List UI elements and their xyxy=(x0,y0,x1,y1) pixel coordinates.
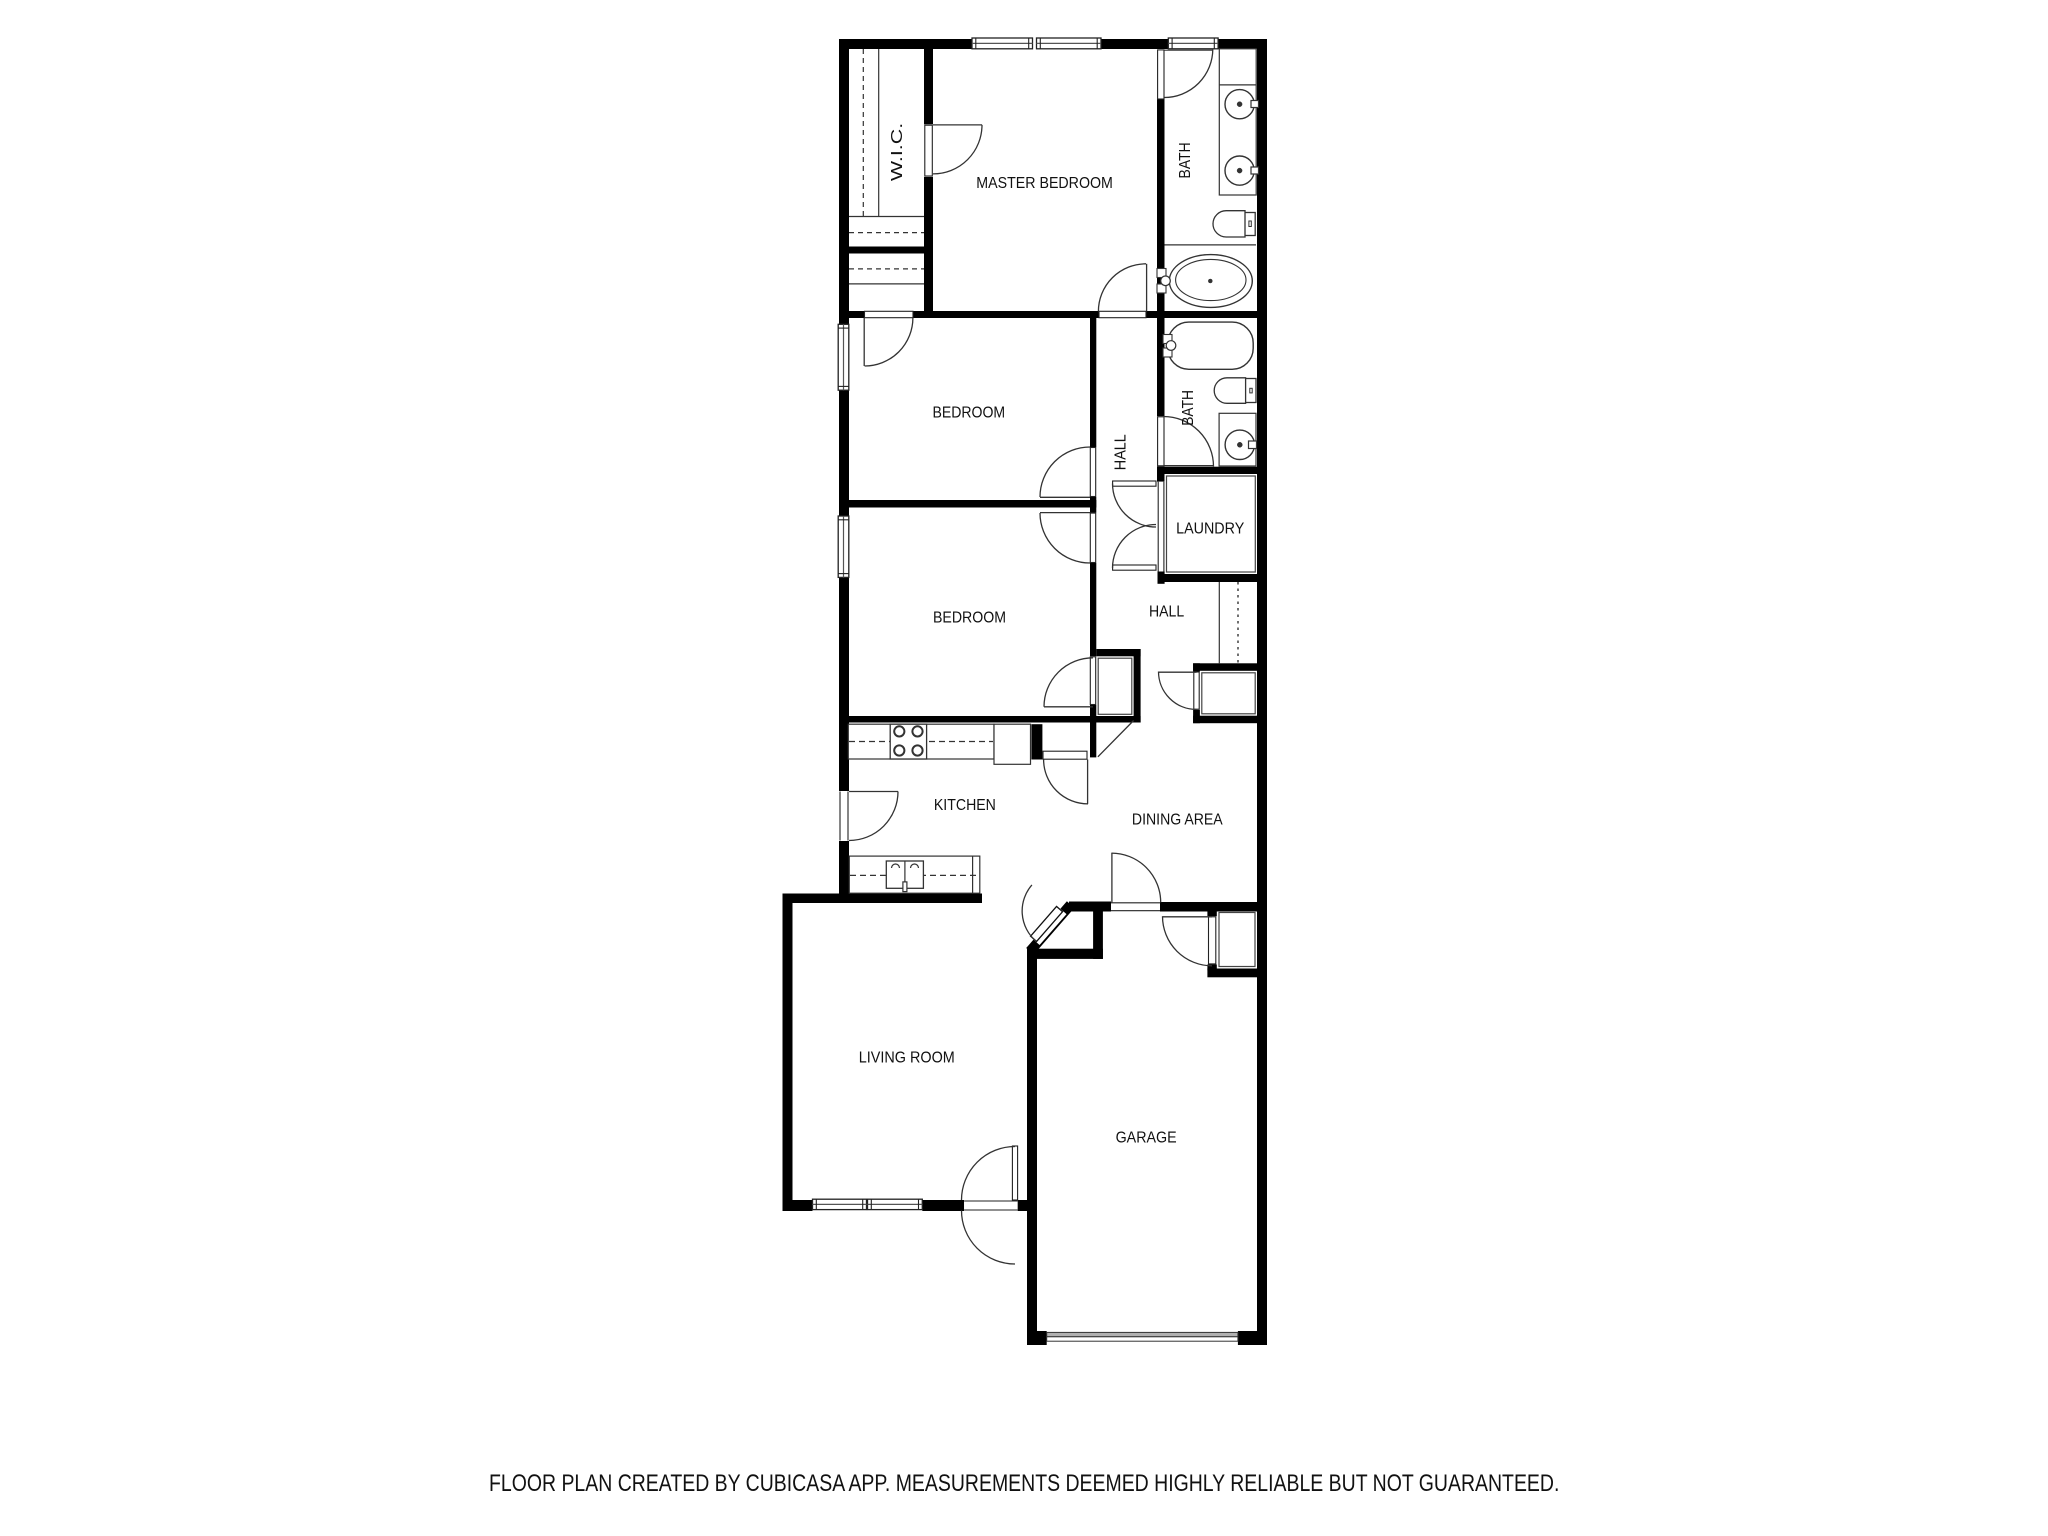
svg-text:W.I.C.: W.I.C. xyxy=(889,123,906,181)
svg-text:DINING AREA: DINING AREA xyxy=(1132,812,1223,829)
svg-text:MASTER BEDROOM: MASTER BEDROOM xyxy=(976,175,1113,192)
svg-text:FLOOR PLAN CREATED BY CUBICASA: FLOOR PLAN CREATED BY CUBICASA APP. MEAS… xyxy=(489,1470,1559,1497)
svg-text:LIVING ROOM: LIVING ROOM xyxy=(859,1050,955,1067)
svg-text:BATH: BATH xyxy=(1177,142,1194,178)
svg-text:BEDROOM: BEDROOM xyxy=(932,405,1005,422)
svg-text:GARAGE: GARAGE xyxy=(1116,1130,1177,1147)
svg-text:LAUNDRY: LAUNDRY xyxy=(1176,520,1245,537)
svg-text:HALL: HALL xyxy=(1113,434,1130,470)
svg-text:BEDROOM: BEDROOM xyxy=(933,610,1006,627)
svg-text:HALL: HALL xyxy=(1149,604,1184,621)
svg-text:KITCHEN: KITCHEN xyxy=(934,797,996,814)
svg-text:BATH: BATH xyxy=(1180,390,1197,426)
